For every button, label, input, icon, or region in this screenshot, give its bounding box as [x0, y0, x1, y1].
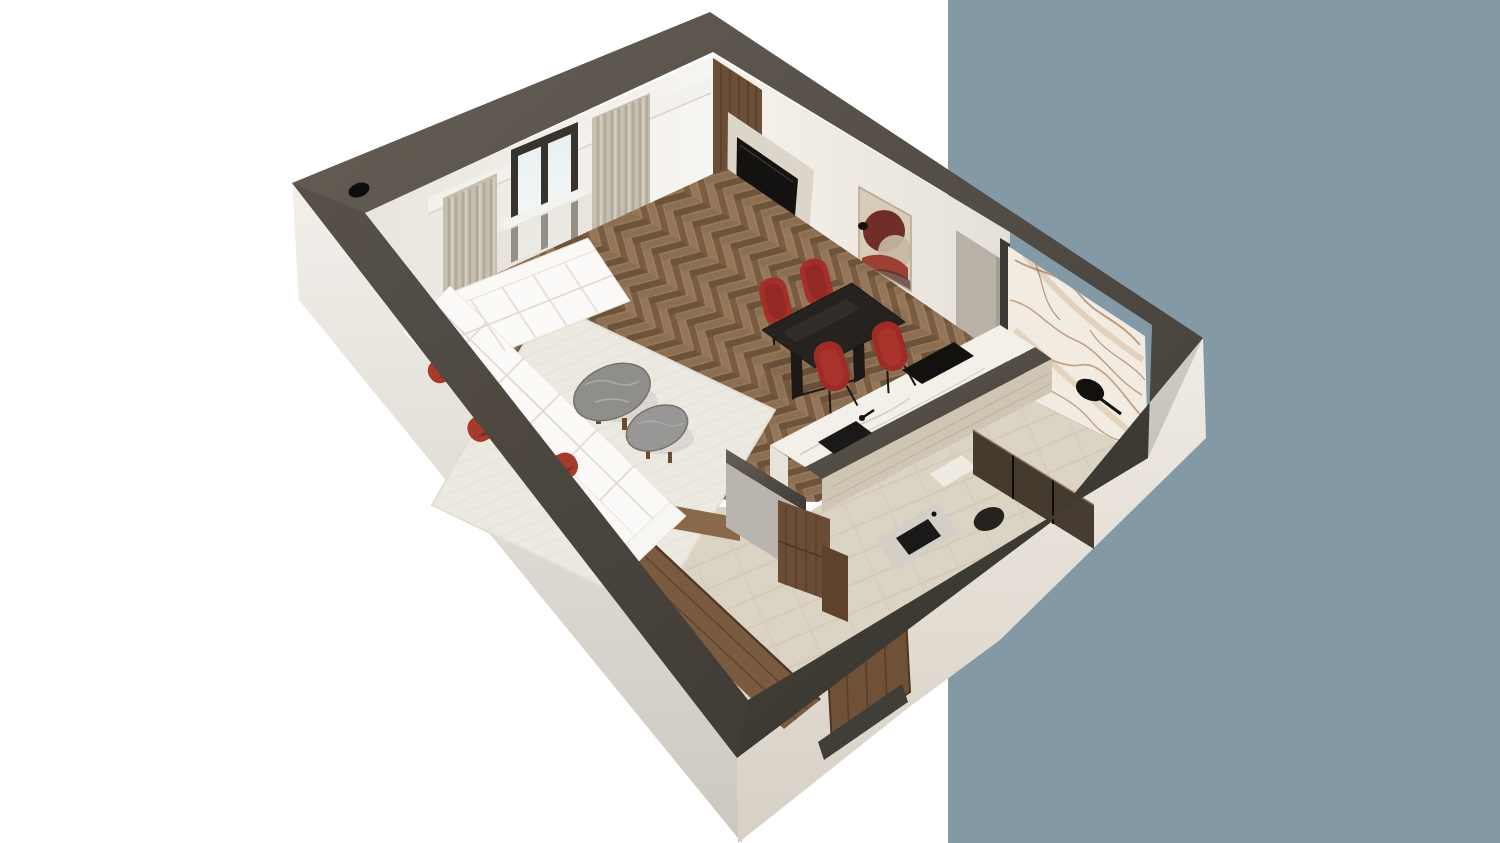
- floorplan-page: [0, 0, 1500, 843]
- interior-door-leaf-2: [822, 545, 848, 622]
- apartment-3d-floorplan: [0, 0, 1500, 843]
- ceiling-spotlight-small: [858, 222, 868, 230]
- vanity-faucet: [932, 512, 937, 517]
